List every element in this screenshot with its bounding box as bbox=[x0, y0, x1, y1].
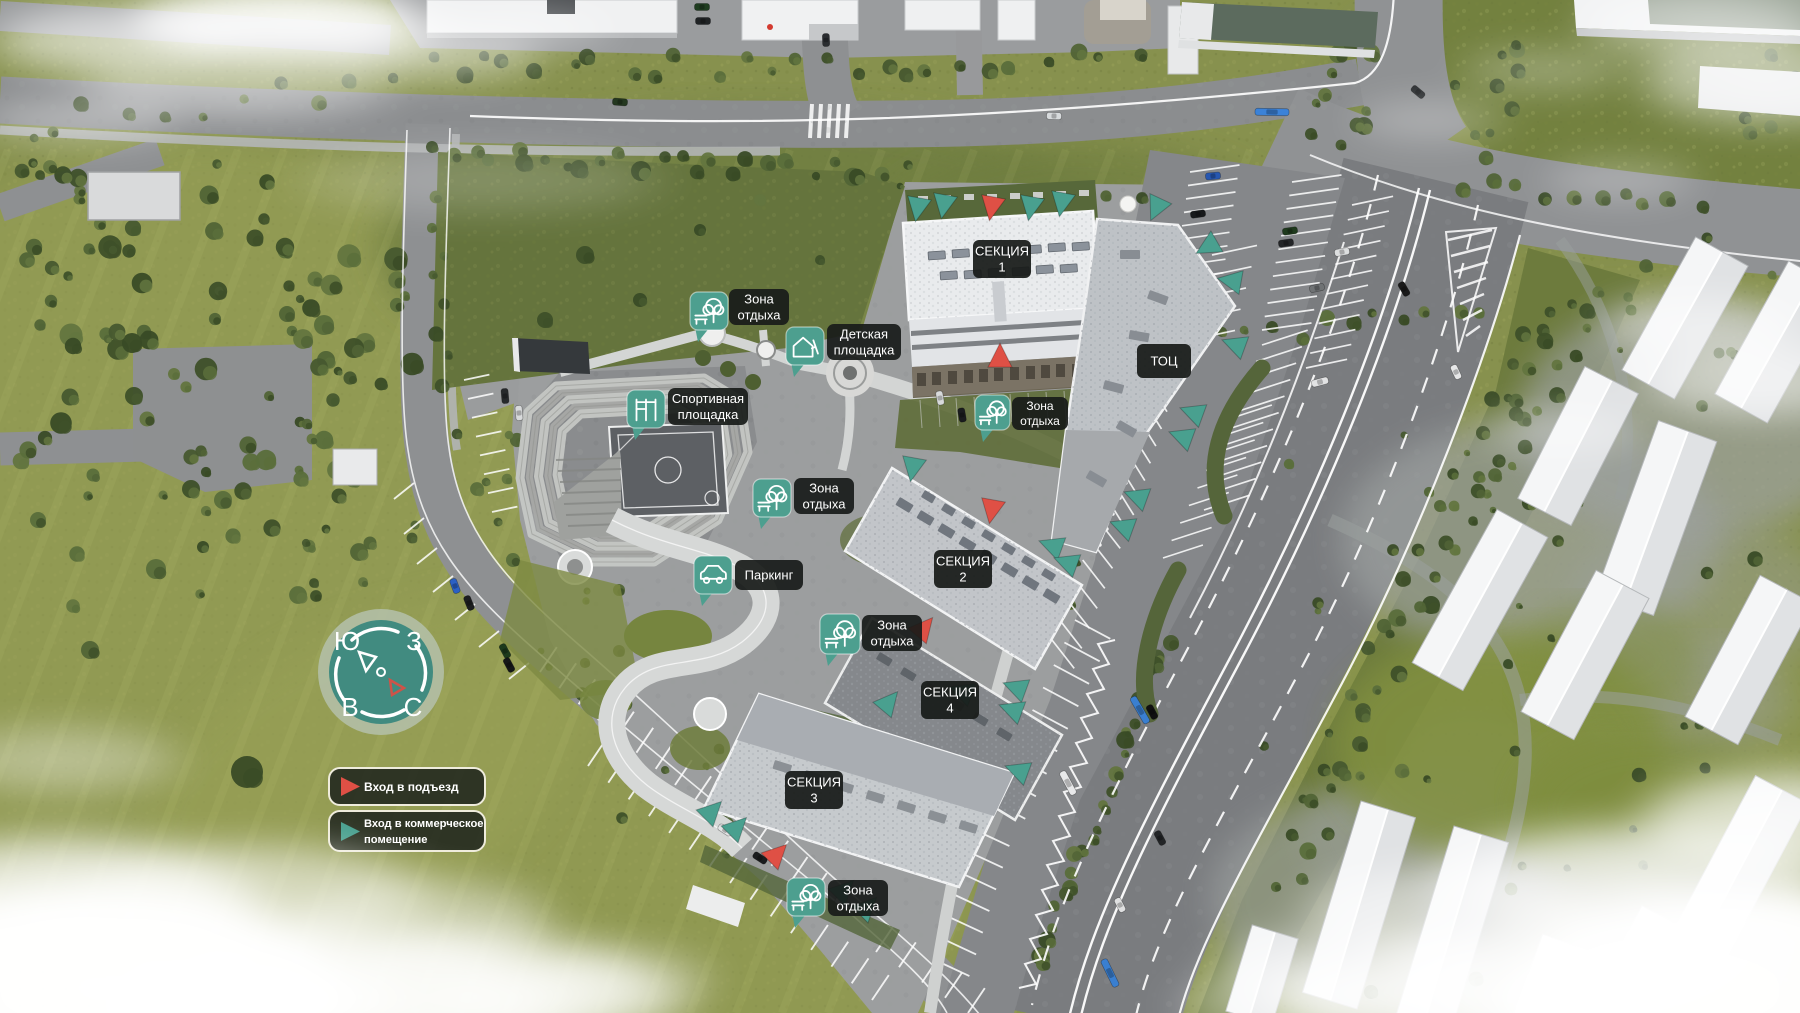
svg-text:отдыха: отдыха bbox=[837, 899, 881, 914]
svg-text:площадка: площадка bbox=[678, 407, 739, 422]
svg-text:СЕКЦИЯ: СЕКЦИЯ bbox=[975, 244, 1029, 259]
svg-text:Зона: Зона bbox=[877, 618, 907, 633]
svg-text:отдыха: отдыха bbox=[803, 497, 847, 512]
svg-text:СЕКЦИЯ: СЕКЦИЯ bbox=[923, 685, 977, 700]
svg-text:Вход в коммерческое: Вход в коммерческое bbox=[364, 818, 484, 830]
svg-text:Зона: Зона bbox=[1026, 399, 1054, 413]
svg-text:площадка: площадка bbox=[834, 343, 895, 358]
svg-text:4: 4 bbox=[946, 701, 953, 716]
svg-text:отдыха: отдыха bbox=[871, 634, 915, 649]
svg-text:В: В bbox=[341, 692, 358, 722]
svg-text:СЕКЦИЯ: СЕКЦИЯ bbox=[787, 775, 841, 790]
svg-text:Детская: Детская bbox=[840, 327, 888, 342]
svg-text:3: 3 bbox=[810, 791, 817, 806]
svg-text:1: 1 bbox=[998, 260, 1005, 275]
svg-text:Зона: Зона bbox=[843, 883, 873, 898]
svg-text:Зона: Зона bbox=[744, 292, 774, 307]
svg-text:Паркинг: Паркинг bbox=[745, 568, 794, 583]
svg-text:отдыха: отдыха bbox=[738, 308, 782, 323]
svg-text:помещение: помещение bbox=[364, 834, 427, 846]
svg-text:Зона: Зона bbox=[809, 481, 839, 496]
svg-text:2: 2 bbox=[959, 570, 966, 585]
svg-text:Спортивная: Спортивная bbox=[672, 391, 744, 406]
svg-text:З: З bbox=[406, 626, 422, 656]
svg-text:СЕКЦИЯ: СЕКЦИЯ bbox=[936, 554, 990, 569]
svg-text:Ю: Ю bbox=[334, 626, 360, 656]
svg-text:отдыха: отдыха bbox=[1020, 414, 1060, 428]
svg-text:С: С bbox=[404, 692, 423, 722]
svg-text:Вход в подъезд: Вход в подъезд bbox=[364, 780, 459, 794]
svg-text:ТОЦ: ТОЦ bbox=[1150, 354, 1177, 369]
